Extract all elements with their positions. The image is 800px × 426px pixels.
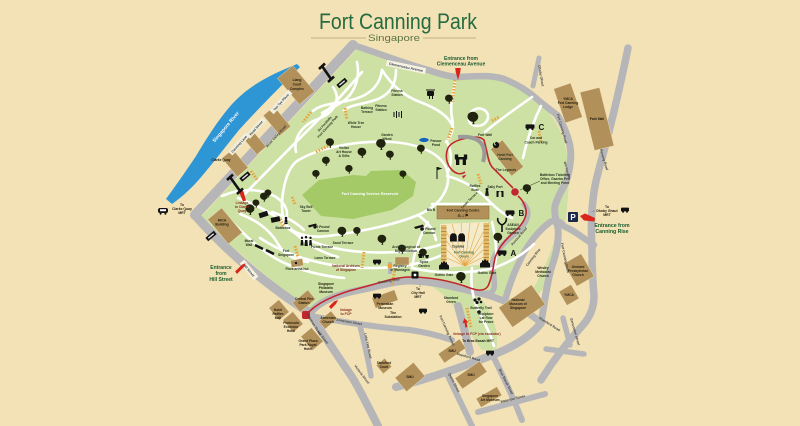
svg-text:Hotel: Hotel <box>287 329 295 333</box>
svg-text:Singapore: Singapore <box>368 33 420 44</box>
svg-text:Sand Terrace: Sand Terrace <box>333 241 354 245</box>
svg-text:P: P <box>570 213 576 222</box>
svg-text:SMU: SMU <box>448 349 456 353</box>
svg-text:to FCP: to FCP <box>341 312 353 316</box>
svg-text:Clarke Quay: Clarke Quay <box>211 158 230 162</box>
svg-text:Liang: Liang <box>293 78 302 82</box>
svg-text:Building: Building <box>215 223 228 227</box>
svg-text:Fort Wall: Fort Wall <box>478 133 492 137</box>
svg-text:Blk B: Blk B <box>427 208 436 212</box>
svg-text:C: C <box>539 123 545 132</box>
svg-text:House: House <box>351 125 361 129</box>
svg-text:Park Mall: Park Mall <box>590 117 605 121</box>
svg-text:Gothic Gate: Gothic Gate <box>478 271 497 275</box>
svg-text:Court: Court <box>380 365 390 369</box>
svg-text:Garden: Garden <box>418 264 430 268</box>
svg-text:MRT: MRT <box>414 295 422 299</box>
svg-text:Cupolas: Cupolas <box>452 245 465 249</box>
svg-text:Canning Rise: Canning Rise <box>595 229 628 235</box>
svg-text:Terrace: Terrace <box>361 110 373 114</box>
svg-text:Coach Parking: Coach Parking <box>524 141 547 145</box>
svg-text:Station: Station <box>375 108 386 112</box>
svg-text:MRT: MRT <box>178 211 186 215</box>
svg-text:B: B <box>519 209 525 218</box>
svg-text:Substation: Substation <box>384 315 401 319</box>
svg-text:Lawn Terrace: Lawn Terrace <box>314 256 335 260</box>
svg-text:Church: Church <box>322 320 334 324</box>
svg-text:Garden: Garden <box>507 231 519 235</box>
svg-text:Station: Station <box>298 301 309 305</box>
svg-text:Wall: Wall <box>246 243 253 247</box>
svg-text:linkage to FCP (via escalator): linkage to FCP (via escalator) <box>453 332 500 336</box>
svg-text:SMU: SMU <box>406 375 414 379</box>
svg-text:The Legends: The Legends <box>496 168 516 172</box>
svg-text:Tower: Tower <box>301 209 311 213</box>
svg-text:of Singapore: of Singapore <box>336 268 356 272</box>
svg-text:Complex: Complex <box>290 87 304 91</box>
svg-text:Fort Canning Park: Fort Canning Park <box>319 9 478 34</box>
svg-text:→: → <box>591 208 596 214</box>
svg-text:and Meeting Point: and Meeting Point <box>541 181 570 185</box>
svg-text:Museum: Museum <box>378 306 391 310</box>
svg-text:for Peace: for Peace <box>479 320 494 324</box>
svg-text:Cannon: Cannon <box>317 229 329 233</box>
svg-text:Butterfly Trail: Butterfly Trail <box>470 306 491 310</box>
svg-text:Wknd: Wknd <box>383 137 392 141</box>
svg-text:Pond: Pond <box>432 143 440 147</box>
svg-text:Fort Canning Service Reservoir: Fort Canning Service Reservoir <box>342 192 399 196</box>
svg-text:Green: Green <box>459 255 468 259</box>
svg-text:A: A <box>511 249 517 258</box>
svg-text:Cannon: Cannon <box>423 231 435 235</box>
svg-text:SMU: SMU <box>467 373 475 377</box>
svg-text:To Bras Basah MRT: To Bras Basah MRT <box>462 339 495 343</box>
svg-text:Court: Court <box>293 83 303 87</box>
svg-text:Dig Exhibition: Dig Exhibition <box>395 249 417 253</box>
svg-text:& Gifts: & Gifts <box>339 154 350 158</box>
svg-text:Mall: Mall <box>275 316 281 320</box>
svg-text:MRT: MRT <box>603 213 611 217</box>
svg-text:Picnic Terrace: Picnic Terrace <box>311 245 333 249</box>
svg-text:Canning: Canning <box>498 157 511 161</box>
svg-text:Hill Street: Hill Street <box>209 277 233 283</box>
svg-text:Singapore: Singapore <box>278 253 294 257</box>
svg-text:Church: Church <box>537 274 549 278</box>
svg-text:Flora artha hut: Flora artha hut <box>285 267 309 271</box>
svg-text:Clemenceau Avenue: Clemenceau Avenue <box>437 62 486 68</box>
svg-text:Lodge: Lodge <box>563 105 573 109</box>
svg-text:Art Museum: Art Museum <box>480 398 499 402</box>
svg-text:Church: Church <box>572 273 584 277</box>
svg-text:Hotel: Hotel <box>304 347 312 351</box>
svg-text:♨♫⚑: ♨♫⚑ <box>457 213 468 218</box>
svg-text:Station: Station <box>391 93 402 97</box>
svg-text:Green: Green <box>446 300 456 304</box>
svg-text:Gothic Gate: Gothic Gate <box>435 273 454 277</box>
svg-text:of Marriages: of Marriages <box>390 268 410 272</box>
svg-text:↓: ↓ <box>419 283 421 288</box>
svg-text:YMCA: YMCA <box>564 293 574 297</box>
svg-text:Singapore: Singapore <box>510 306 526 310</box>
svg-text:Car and: Car and <box>530 136 542 140</box>
svg-text:Quay: Quay <box>238 209 247 213</box>
svg-text:Museum: Museum <box>319 290 332 294</box>
svg-text:Battlebox: Battlebox <box>275 226 290 230</box>
svg-text:Sally Port: Sally Port <box>487 185 503 189</box>
